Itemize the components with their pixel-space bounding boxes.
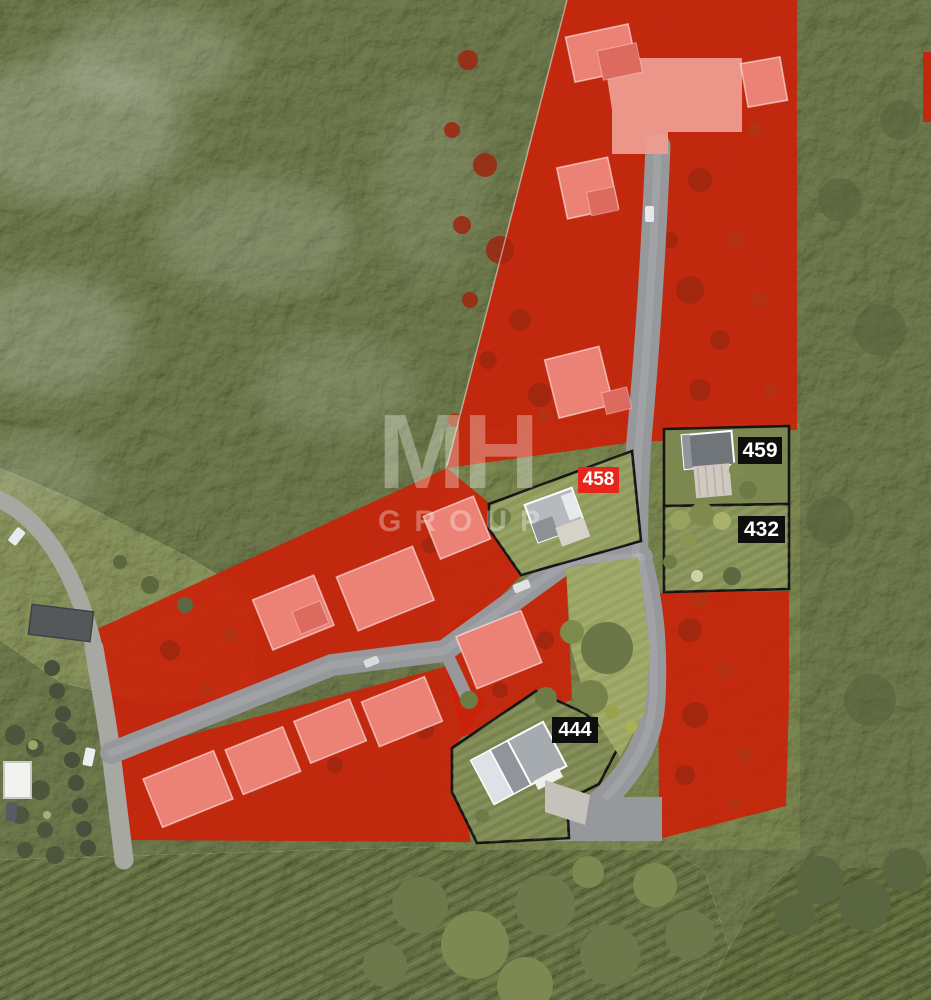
tree (535, 687, 557, 709)
bush (739, 481, 757, 499)
sold-garage (740, 57, 787, 107)
tree (475, 809, 489, 823)
plot-badge-459-label: 459 (742, 439, 777, 463)
parked-car (5, 802, 17, 822)
plot-badge-458-label: 458 (583, 469, 615, 491)
plot-badge-432[interactable]: 432 (738, 516, 785, 543)
plot-badge-444[interactable]: 444 (552, 717, 598, 743)
plot-badge-444-label: 444 (558, 719, 591, 742)
plot-badge-432-label: 432 (744, 518, 779, 542)
tree (493, 508, 511, 526)
plot-badge-458[interactable]: 458 (578, 467, 619, 493)
barn-building (28, 604, 93, 641)
aerial-plot-map: MH GROUP 458 459 432 444 (0, 0, 931, 1000)
sold-zone-edge-sliver (923, 52, 931, 122)
aerial-photo-canvas (0, 0, 931, 1000)
bush (729, 462, 745, 478)
sold-zone-east (658, 591, 789, 839)
plot-badge-459[interactable]: 459 (738, 437, 782, 464)
sold-house (557, 157, 619, 221)
car-on-road-3 (645, 206, 654, 222)
tree (460, 691, 478, 709)
white-garage-building (4, 762, 31, 798)
